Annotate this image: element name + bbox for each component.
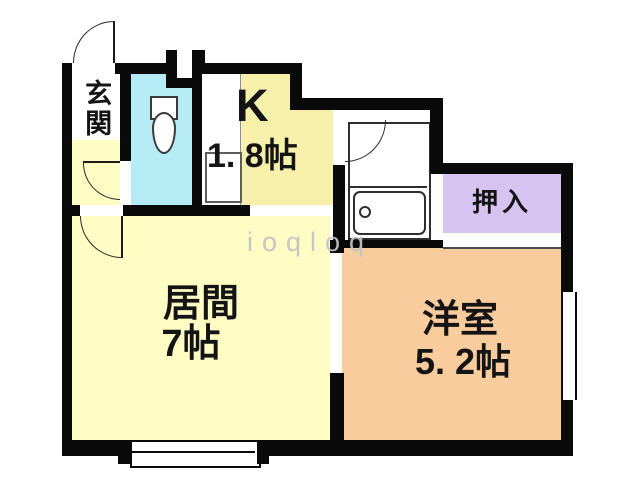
wall xyxy=(561,163,573,292)
kitchen-room-lower xyxy=(302,110,333,205)
south-window-jamb xyxy=(118,440,130,464)
wall xyxy=(192,63,302,74)
exterior-notch xyxy=(177,50,192,78)
entry-door-opening xyxy=(72,63,115,74)
wall xyxy=(290,98,443,110)
wall xyxy=(120,74,131,161)
wall xyxy=(62,63,72,456)
wall xyxy=(430,163,572,174)
entry-door-arc xyxy=(73,21,114,63)
living-room-label: 居間 xyxy=(140,284,262,325)
wall xyxy=(192,50,202,216)
kitchen-size-label: 1. 8帖 xyxy=(207,138,298,175)
wall xyxy=(123,205,250,216)
bathroom-divider-line xyxy=(348,186,427,188)
east-window xyxy=(561,292,577,400)
floorplan-canvas: 玄関 K 1. 8帖 居間 7帖 洋室 5. 2帖 押入 ioqloq xyxy=(0,0,640,480)
genkan-label: 玄関 xyxy=(81,79,110,139)
bathtub-drain-icon xyxy=(359,206,371,218)
south-window-jamb xyxy=(257,440,269,464)
wall xyxy=(192,50,205,63)
toilet-door-opening xyxy=(120,161,131,203)
watermark-text: ioqloq xyxy=(247,227,373,258)
south-window xyxy=(130,440,261,468)
kitchen-label: K xyxy=(236,82,269,131)
closet-label: 押入 xyxy=(443,188,561,216)
closet-sliding-door xyxy=(443,233,561,249)
wall xyxy=(330,373,344,456)
western-room-size-label: 5. 2帖 xyxy=(398,343,528,382)
wall xyxy=(72,205,80,216)
living-room-size-label: 7帖 xyxy=(130,324,252,365)
western-room-label: 洋室 xyxy=(395,300,525,341)
